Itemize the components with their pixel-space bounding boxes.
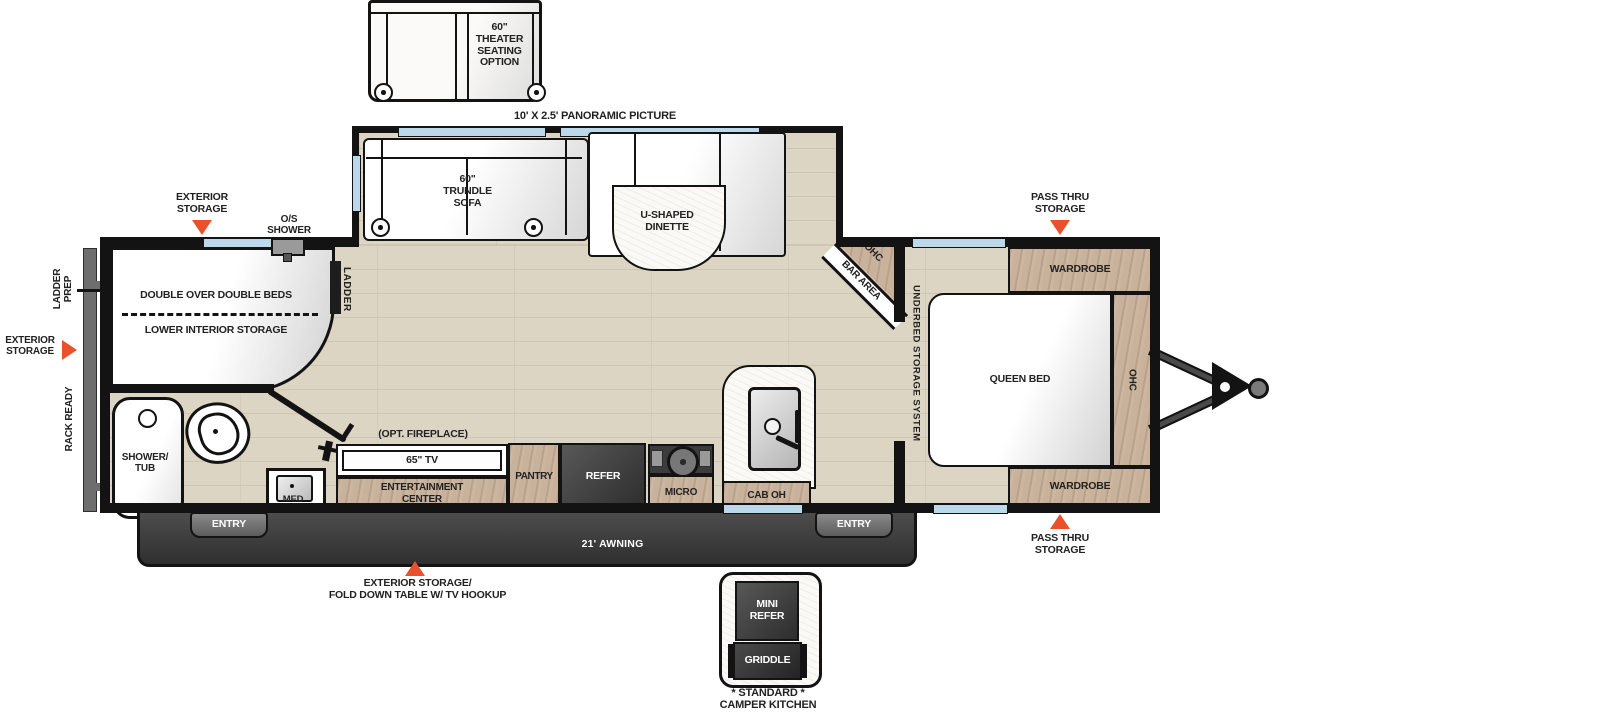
- entry-label: ENTRY: [837, 519, 871, 531]
- wall: [100, 237, 110, 513]
- bathroom-wall: [100, 384, 274, 393]
- pantry: PANTRY: [508, 443, 560, 511]
- window: [723, 504, 803, 514]
- dinette-label: U-SHAPED DINETTE: [612, 210, 722, 234]
- mini-refer-label: MINI REFER: [750, 599, 785, 623]
- hitch-ball-icon: [1248, 378, 1269, 399]
- wardrobe-top: WARDROBE: [1008, 247, 1152, 293]
- window: [933, 504, 1008, 514]
- ladder-label: LADDER: [341, 260, 352, 318]
- wall: [1150, 237, 1160, 513]
- tv-label: 65" TV: [406, 455, 438, 467]
- storage-arrow-icon: [1050, 220, 1070, 235]
- faucet-icon: [795, 410, 801, 443]
- sink-drain-icon: [764, 418, 781, 435]
- pass-thru-top-label: PASS THRU STORAGE: [1008, 192, 1112, 216]
- window: [912, 238, 1006, 248]
- cupholder-icon: [527, 83, 546, 102]
- toilet-drain-icon: [213, 429, 218, 434]
- exterior-storage-top-label: EXTERIOR STORAGE: [150, 192, 254, 216]
- micro-label: MICRO: [665, 487, 697, 498]
- cupholder-icon: [374, 83, 393, 102]
- opt-fireplace-label: (OPT. FIREPLACE): [343, 429, 503, 441]
- camper-kitchen-caption: * STANDARD * CAMPER KITCHEN: [690, 687, 846, 712]
- slideout-window: [398, 127, 546, 137]
- theater-option-label: 60" THEATER SEATING OPTION: [442, 22, 557, 69]
- entry-door-rear: ENTRY: [190, 512, 268, 538]
- hitch-bolt-icon: [1218, 380, 1232, 394]
- bunk-divider-line: [122, 313, 318, 316]
- shower-drain-icon: [138, 409, 157, 428]
- queen-bed-label: QUEEN BED: [990, 374, 1051, 386]
- refrigerator: REFER: [560, 443, 646, 511]
- window: [203, 238, 280, 248]
- os-shower-label: O/S SHOWER: [250, 214, 328, 236]
- awning-label: 21' AWNING: [540, 539, 685, 551]
- tv-screen: 65" TV: [342, 450, 502, 471]
- sofa-armrest-line: [565, 140, 567, 235]
- cupholder-icon: [524, 218, 543, 237]
- wardrobe-label: WARDROBE: [1050, 264, 1111, 276]
- cab-oh-label: CAB OH: [747, 490, 785, 501]
- ladder-icon: [330, 261, 341, 314]
- shower-tub-label: SHOWER/ TUB: [112, 452, 178, 474]
- panoramic-window-label: 10' X 2.5' PANORAMIC PICTURE: [455, 110, 735, 122]
- cooktop-grate-icon: [651, 450, 663, 467]
- entertainment-center-label: ENTERTAINMENT CENTER: [381, 482, 463, 504]
- cupholder-icon: [371, 218, 390, 237]
- lower-storage-label: LOWER INTERIOR STORAGE: [118, 325, 314, 337]
- mini-refer: MINI REFER: [735, 581, 799, 641]
- storage-arrow-icon: [62, 340, 77, 360]
- interior-wall: [894, 247, 905, 322]
- pantry-label: PANTRY: [515, 471, 553, 482]
- outside-shower-valve-icon: [283, 253, 292, 262]
- exterior-storage-left-label: EXTERIOR STORAGE: [0, 335, 60, 357]
- burner-icon: [667, 446, 699, 478]
- bunk-beds-label: DOUBLE OVER DOUBLE BEDS: [118, 290, 314, 302]
- bedroom-ohc: OHC: [1112, 293, 1152, 467]
- underbed-storage-label: UNDERBED STORAGE SYSTEM: [910, 262, 921, 464]
- sofa-backrest-line: [366, 157, 582, 159]
- double-over-double-beds: [110, 247, 335, 393]
- rack-ready-label: RACK READY: [58, 371, 82, 467]
- rv-floorplan: 60" TRUNDLE SOFA U-SHAPED DINETTE DOUBLE…: [0, 0, 1600, 712]
- cooktop-grate-icon: [699, 450, 711, 467]
- interior-wall: [894, 441, 905, 505]
- storage-arrow-icon: [192, 220, 212, 235]
- ladder-prep-label: LADDER PREP: [47, 240, 79, 338]
- trundle-sofa-label: 60" TRUNDLE SOFA: [400, 174, 535, 209]
- entry-label: ENTRY: [212, 519, 246, 531]
- pass-thru-bottom-label: PASS THRU STORAGE: [1008, 533, 1112, 557]
- storage-arrow-icon: [1050, 514, 1070, 529]
- griddle-label: GRIDDLE: [745, 655, 791, 667]
- storage-arrow-icon: [405, 561, 425, 576]
- exterior-storage-table-label: EXTERIOR STORAGE/ FOLD DOWN TABLE W/ TV …: [275, 578, 560, 602]
- queen-bed: QUEEN BED: [928, 293, 1112, 467]
- ohc-label: OHC: [1126, 369, 1137, 391]
- wardrobe-bottom: WARDROBE: [1008, 467, 1152, 507]
- refer-label: REFER: [586, 471, 621, 483]
- slideout-side-window: [352, 155, 361, 212]
- griddle: GRIDDLE: [733, 642, 802, 680]
- wardrobe-label: WARDROBE: [1050, 481, 1111, 493]
- entry-door-main: ENTRY: [815, 512, 893, 538]
- med-sink-drain-icon: [290, 484, 294, 488]
